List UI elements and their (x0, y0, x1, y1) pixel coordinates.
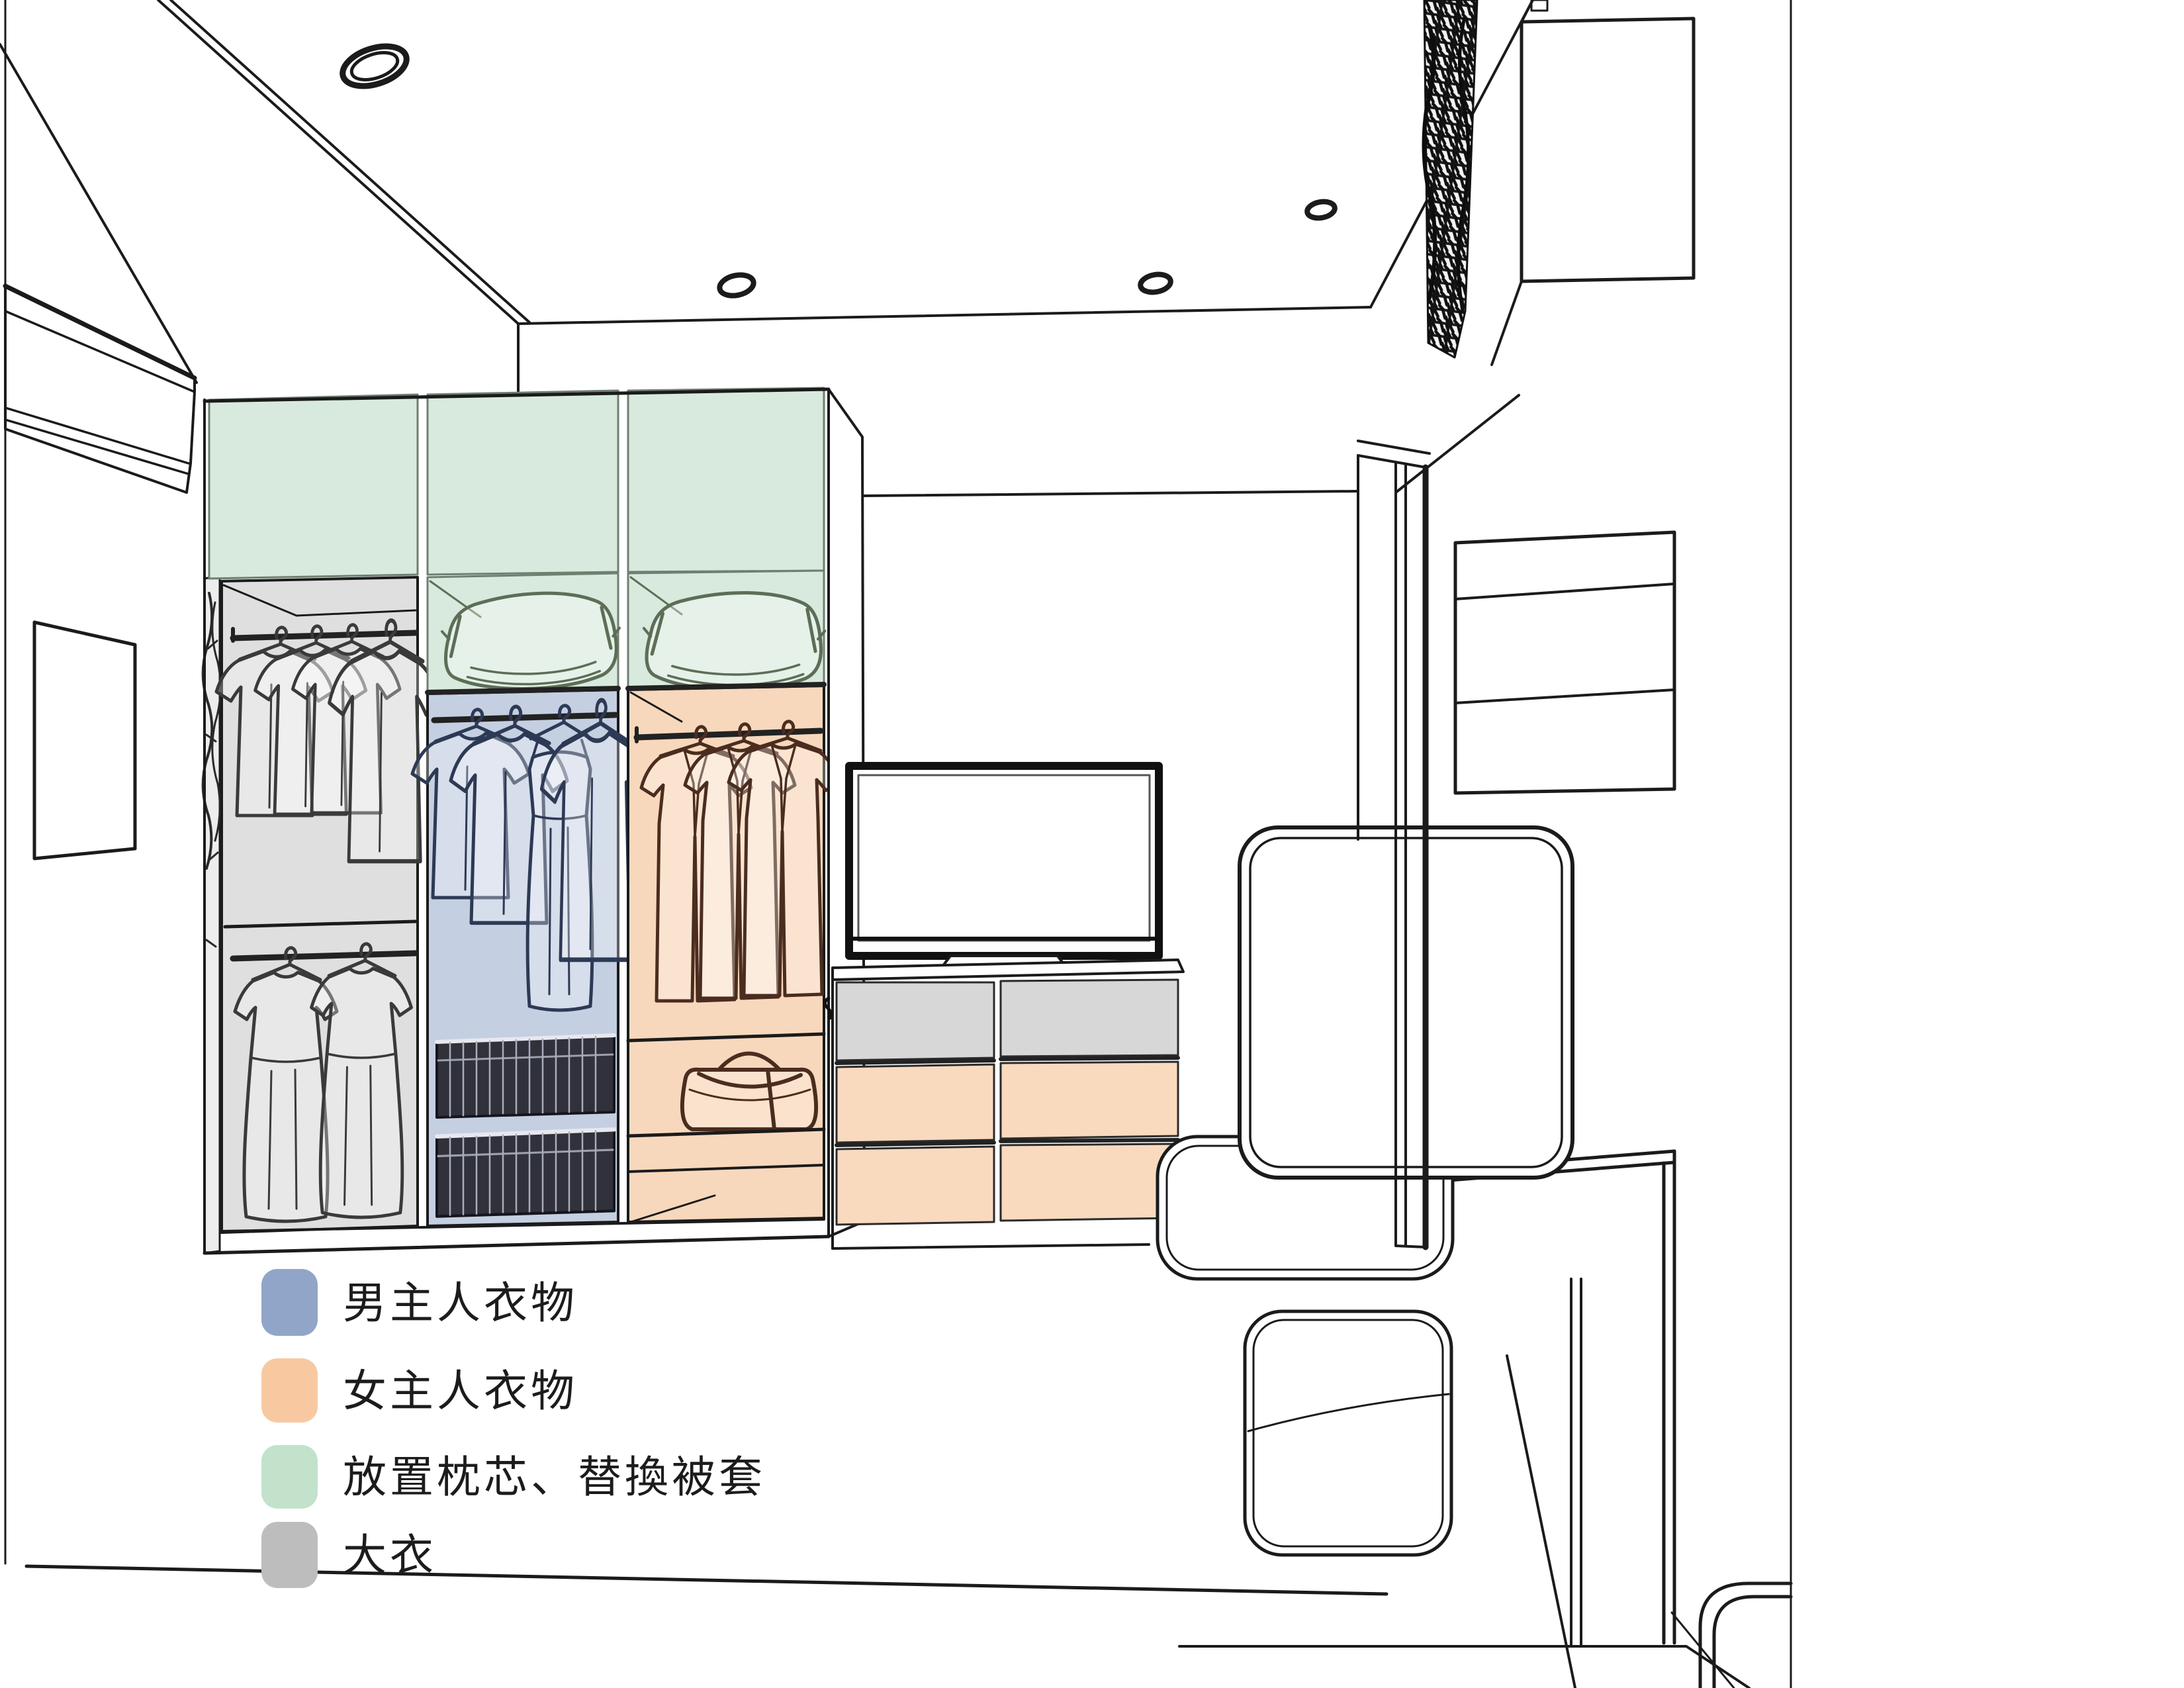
legend: 男主人衣物 女主人衣物 放置枕芯、替換被套 大衣 (0, 0, 2184, 1688)
legend-swatch-female-clothes (261, 1358, 318, 1423)
legend-swatch-coats (261, 1522, 318, 1588)
legend-item-female-clothes: 女主人衣物 (261, 1358, 578, 1423)
legend-label-coats: 大衣 (343, 1533, 437, 1577)
legend-label-male-clothes: 男主人衣物 (343, 1281, 578, 1325)
legend-item-coats: 大衣 (261, 1522, 437, 1588)
legend-label-bedding: 放置枕芯、替換被套 (343, 1455, 766, 1499)
legend-label-female-clothes: 女主人衣物 (343, 1369, 578, 1413)
interior-rendering-page: 男主人衣物 女主人衣物 放置枕芯、替換被套 大衣 (0, 0, 2184, 1688)
legend-item-male-clothes: 男主人衣物 (261, 1269, 578, 1336)
legend-swatch-bedding (261, 1445, 318, 1509)
legend-swatch-male-clothes (261, 1269, 318, 1336)
legend-item-bedding: 放置枕芯、替換被套 (261, 1445, 766, 1509)
